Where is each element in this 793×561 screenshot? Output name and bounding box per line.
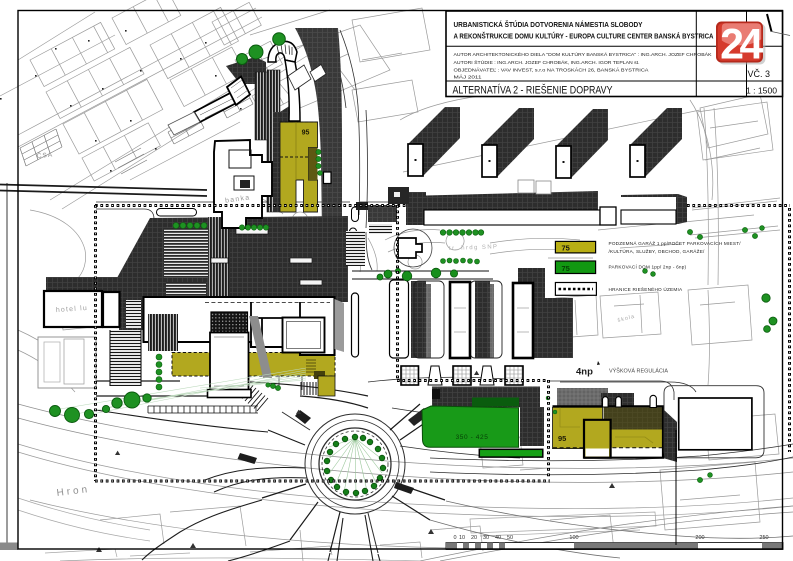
svg-text:10: 10 — [459, 535, 465, 541]
svg-text:200: 200 — [695, 535, 704, 541]
svg-text:75: 75 — [562, 244, 570, 253]
svg-text:VÝŠKOVÁ REGULÁCIA: VÝŠKOVÁ REGULÁCIA — [609, 368, 668, 375]
svg-text:250: 250 — [759, 535, 768, 541]
svg-text:4np: 4np — [576, 367, 593, 378]
svg-text:MÁJ 2011: MÁJ 2011 — [454, 74, 482, 81]
svg-text:OBJEDNÁVATEĽ : VAV INVEST, s.r: OBJEDNÁVATEĽ : VAV INVEST, s.r.o NA TROS… — [454, 67, 650, 74]
svg-text:350 - 425: 350 - 425 — [456, 434, 489, 441]
svg-text:ALTERNATÍVA 2 - RIEŠENIE DOPRA: ALTERNATÍVA 2 - RIEŠENIE DOPRAVY — [453, 84, 613, 97]
svg-text:20: 20 — [471, 535, 477, 541]
svg-text:0: 0 — [453, 535, 456, 541]
svg-text:50: 50 — [507, 535, 513, 541]
svg-text:PODZEMNÁ GARÁŽ 1 pp/POČET PARK: PODZEMNÁ GARÁŽ 1 pp/POČET PARKOVACÍCH MI… — [609, 239, 742, 246]
svg-text:PARKOVACÍ DOM 1pp/ 2np - 6np): PARKOVACÍ DOM 1pp/ 2np - 6np) — [609, 263, 687, 269]
svg-text:1 : 1500: 1 : 1500 — [746, 86, 777, 96]
svg-text:VČ. 3: VČ. 3 — [747, 69, 770, 79]
svg-text:HRANICE RIEŠENÉHO ÚZEMIA: HRANICE RIEŠENÉHO ÚZEMIA — [609, 286, 683, 292]
svg-text:95: 95 — [558, 434, 566, 443]
svg-text:/KULTÚRA, SLUŽBY, OBCHOD, GARÁ: /KULTÚRA, SLUŽBY, OBCHOD, GARÁŽE/ — [609, 247, 706, 254]
svg-text:95: 95 — [302, 130, 310, 137]
svg-text:24: 24 — [720, 21, 763, 69]
svg-text:AUTORI ŠTÚDIE : ING.ARCH. JOZE: AUTORI ŠTÚDIE : ING.ARCH. JOZEF CHROBÁK,… — [454, 59, 640, 66]
svg-text:100: 100 — [569, 535, 578, 541]
svg-text:AUTOR ARCHITEKTONICKÉHO DIELA: AUTOR ARCHITEKTONICKÉHO DIELA "DOM KULTÚ… — [454, 51, 713, 58]
svg-text:40: 40 — [495, 535, 501, 541]
svg-text:30: 30 — [483, 535, 489, 541]
svg-text:75: 75 — [562, 264, 570, 273]
svg-text:URBANISTICKÁ ŠTÚDIA DOTVORENI: URBANISTICKÁ ŠTÚDIA DOTVORENIA NÁMESTIA … — [454, 20, 643, 29]
svg-text:A REKONŠTRUKCIE DOMU KULTÚRY -: A REKONŠTRUKCIE DOMU KULTÚRY - EUROPA CU… — [454, 32, 714, 41]
